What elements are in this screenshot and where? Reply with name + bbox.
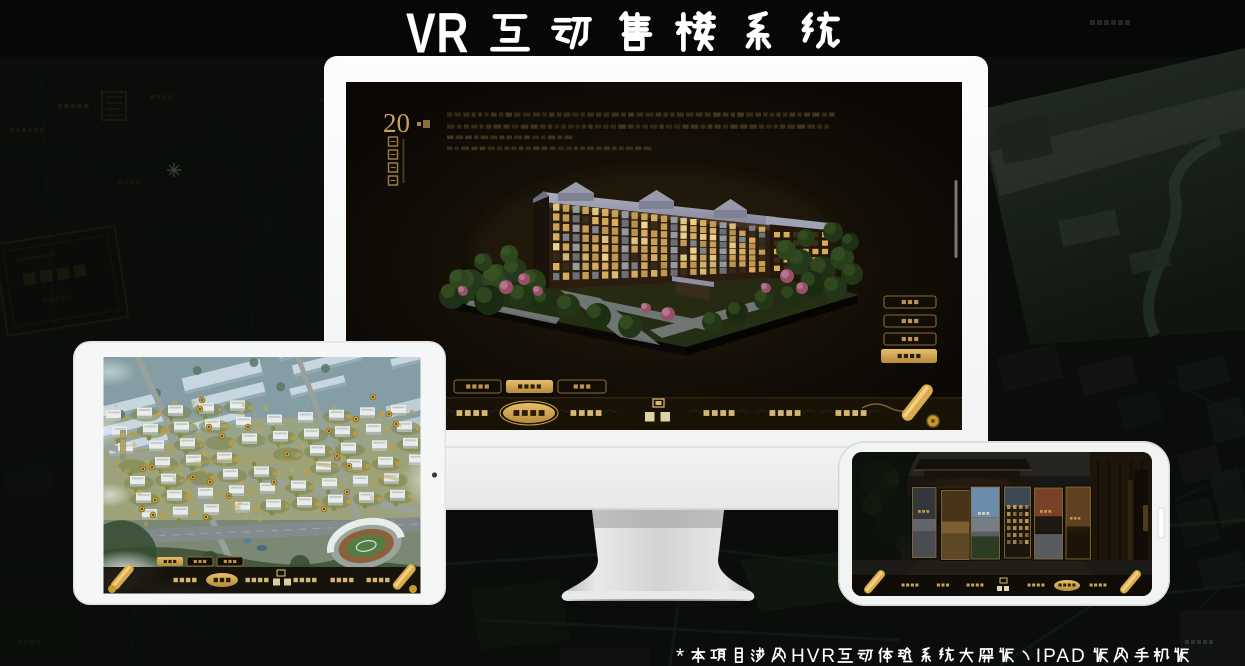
- svg-text:*: *: [676, 645, 684, 666]
- svg-text:HVR: HVR: [791, 646, 837, 666]
- svg-text:IPAD: IPAD: [1036, 646, 1087, 666]
- svg-text:20: 20: [383, 108, 410, 138]
- svg-text:VR: VR: [406, 1, 469, 65]
